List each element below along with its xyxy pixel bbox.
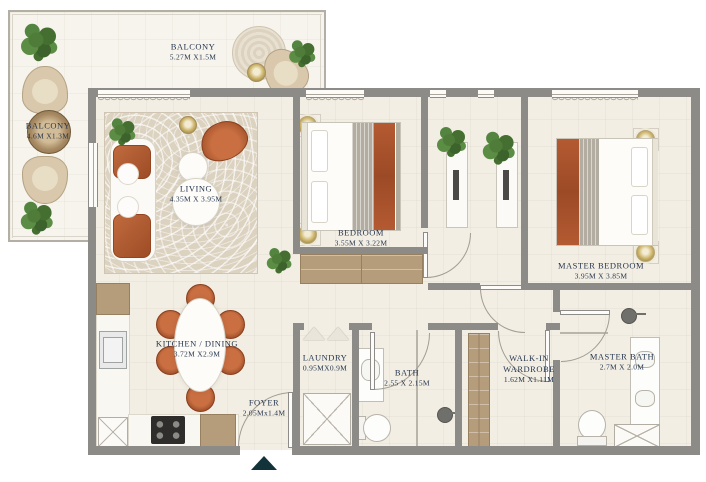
- headboard: [652, 139, 658, 245]
- dresser-handle: [453, 170, 459, 200]
- bed-pillow: [631, 195, 648, 235]
- floor-plan-canvas: BALCONY 5.27M X1.5M BALCONY 4.6M X1.3M L…: [0, 0, 706, 482]
- room-dims: 5.27M X1.5M: [170, 53, 216, 63]
- bedroom-bed: [301, 122, 401, 231]
- bedroom-door-leaf: [423, 232, 428, 278]
- room-dims: 2.7M X 2.0M: [590, 363, 654, 373]
- hall-window: [478, 89, 494, 98]
- headboard: [302, 123, 308, 230]
- bedroom-wardrobe: [300, 254, 423, 284]
- balcony-railing-inner: [320, 14, 321, 90]
- room-dims: 4.35M X 3.95M: [170, 195, 223, 205]
- shower-head-icon: [621, 308, 637, 324]
- balcony-railing-inner: [12, 14, 322, 15]
- wall: [293, 323, 304, 330]
- living-window: [98, 89, 190, 98]
- room-name: FOYER: [243, 398, 286, 409]
- shower-arm: [634, 313, 646, 315]
- wall: [292, 446, 700, 455]
- wall: [546, 323, 560, 330]
- room-name: BALCONY: [26, 121, 71, 132]
- bedroom-window: [306, 89, 364, 98]
- wall: [521, 283, 700, 290]
- bath-door-leaf: [370, 332, 375, 390]
- room-label-kitchen-dining: KITCHEN / DINING 3.72M X2.9M: [156, 339, 238, 360]
- room-label-master-bedroom: MASTER BEDROOM 3.95M X 3.85M: [558, 261, 644, 282]
- laundry-bifold-door: [303, 327, 325, 340]
- room-label-bedroom: BEDROOM 3.55M X 3.22M: [335, 228, 388, 249]
- balcony-railing: [8, 10, 326, 12]
- balcony-side-table: [247, 63, 266, 82]
- room-name: BEDROOM: [335, 228, 388, 239]
- bed-pillow: [311, 130, 328, 172]
- room-name: BATH: [384, 368, 430, 379]
- room-label-master-bath: MASTER BATH 2.7M X 2.0M: [590, 352, 654, 373]
- room-name: LIVING: [170, 184, 223, 195]
- stove: [151, 416, 185, 444]
- room-name: MASTER BEDROOM: [558, 261, 644, 272]
- washing-machine: [303, 393, 351, 445]
- wall: [428, 283, 480, 290]
- plant-icon: [295, 47, 306, 58]
- side-table: [179, 116, 197, 134]
- room-dims: 1.62M X1.11M: [497, 375, 561, 385]
- sofa-pillow: [117, 163, 139, 185]
- wardrobe-shelving: [468, 333, 490, 448]
- hall-door-leaf: [480, 285, 526, 290]
- plant-icon: [27, 209, 40, 222]
- room-label-walk-in-wardrobe: WALK-IN WARDROBE 1.62M X1.11M: [497, 353, 561, 385]
- balcony-railing: [8, 10, 10, 242]
- room-label-balcony-top: BALCONY 5.27M X1.5M: [170, 42, 216, 63]
- sofa-cushion: [113, 214, 151, 258]
- toilet: [363, 414, 391, 442]
- wall: [455, 330, 462, 446]
- balcony-railing: [8, 240, 90, 242]
- room-dims: 3.72M X2.9M: [156, 350, 238, 360]
- bed-pillow: [631, 147, 648, 187]
- room-dims: 3.95M X 3.85M: [558, 272, 644, 282]
- room-label-foyer: FOYER 2.05Mx1.4M: [243, 398, 286, 419]
- bed-frame: [396, 123, 400, 230]
- wall: [293, 330, 300, 446]
- sofa-pillow: [117, 196, 139, 218]
- room-name: WALK-IN WARDROBE: [497, 353, 561, 375]
- master-window: [552, 89, 638, 98]
- shower-head-icon: [437, 407, 453, 423]
- dresser-handle: [503, 170, 509, 200]
- laundry-bifold-door: [327, 327, 349, 340]
- balcony-railing-inner: [12, 14, 13, 238]
- master-bath-door-leaf: [560, 310, 610, 315]
- room-dims: 2.55 X 2.15M: [384, 379, 430, 389]
- room-name: MASTER BATH: [590, 352, 654, 363]
- room-dims: 4.6M X1.3M: [26, 132, 71, 142]
- room-name: KITCHEN / DINING: [156, 339, 238, 350]
- entrance-arrow-icon: [251, 456, 277, 470]
- kitchen-counter-wood: [200, 414, 236, 448]
- room-label-balcony-left: BALCONY 4.6M X1.3M: [26, 121, 71, 142]
- wall: [88, 88, 96, 143]
- room-label-living: LIVING 4.35M X 3.95M: [170, 184, 223, 205]
- wall: [88, 446, 240, 455]
- plant-icon: [272, 254, 282, 264]
- wall: [553, 290, 560, 312]
- master-bath-vanity: [630, 337, 660, 427]
- balcony-door: [88, 143, 98, 207]
- wall: [521, 97, 528, 283]
- master-bed: [556, 138, 658, 246]
- room-label-laundry: LAUNDRY 0.95MX0.9M: [303, 353, 348, 374]
- plant-icon: [29, 33, 44, 48]
- room-name: BALCONY: [170, 42, 216, 53]
- kitchen-counter-wood: [96, 283, 130, 315]
- room-dims: 3.55M X 3.22M: [335, 239, 388, 249]
- room-dims: 2.05Mx1.4M: [243, 409, 286, 419]
- appliance: [98, 417, 128, 447]
- balcony-railing-inner: [12, 236, 88, 237]
- shower-tray: [614, 424, 660, 448]
- room-dims: 0.95MX0.9M: [303, 364, 348, 374]
- plant-icon: [115, 125, 126, 136]
- hall-window: [430, 89, 446, 98]
- wall: [88, 207, 96, 446]
- bed-pillow: [311, 181, 328, 223]
- bed-throw: [352, 123, 374, 230]
- bed-blanket: [557, 139, 579, 245]
- balcony-chair: [22, 66, 68, 114]
- plant-icon: [489, 139, 502, 152]
- wall: [428, 323, 498, 330]
- kitchen-sink: [99, 331, 127, 369]
- bed-blanket: [374, 123, 395, 230]
- wall: [691, 88, 700, 455]
- wall: [352, 330, 359, 446]
- balcony-railing: [324, 10, 326, 90]
- room-label-bath: BATH 2.55 X 2.15M: [384, 368, 430, 389]
- plant-icon: [443, 134, 455, 146]
- toilet: [577, 436, 607, 446]
- wall: [293, 97, 300, 247]
- room-name: LAUNDRY: [303, 353, 348, 364]
- wall: [349, 323, 372, 330]
- bed-throw: [579, 139, 599, 245]
- wall: [421, 97, 428, 228]
